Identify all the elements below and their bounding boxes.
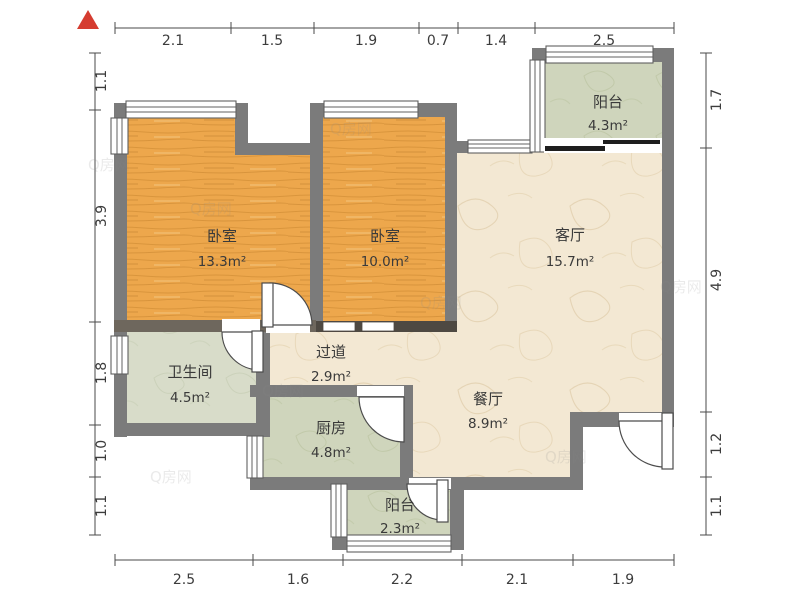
wall-notch-bottom bbox=[235, 143, 316, 155]
exterior-notch bbox=[248, 100, 310, 143]
balcony-bottom-area: 2.3m² bbox=[380, 521, 420, 537]
sliding-door-panel bbox=[603, 140, 660, 144]
watermark-text: Q房网 bbox=[150, 468, 192, 486]
dim-top-6: 2.5 bbox=[593, 33, 615, 49]
window-living-north bbox=[468, 140, 532, 153]
balcony-bottom-label: 阳台 bbox=[385, 496, 415, 514]
dim-left-2: 3.9 bbox=[94, 205, 110, 227]
watermark-text: Q房网 bbox=[88, 156, 130, 174]
watermark-text: Q房网 bbox=[545, 448, 587, 466]
dim-top-3: 1.9 bbox=[355, 33, 377, 49]
floor-plan-drawing: 卧室 13.3m² 卧室 10.0m² 客厅 15.7m² 阳台 4.3m² 卫… bbox=[0, 0, 800, 600]
floor-plan-page: 卧室 13.3m² 卧室 10.0m² 客厅 15.7m² 阳台 4.3m² 卫… bbox=[0, 0, 800, 600]
bedroom2-sliding-panel bbox=[323, 322, 355, 331]
balcony-top-area: 4.3m² bbox=[588, 118, 628, 134]
watermark-text: Q房网 bbox=[660, 278, 702, 296]
dim-left-5: 1.1 bbox=[94, 495, 110, 517]
watermark-text: Q房网 bbox=[330, 120, 372, 138]
dim-bottom-5: 1.9 bbox=[612, 572, 634, 588]
dim-top-5: 1.4 bbox=[485, 33, 507, 49]
dining-room-area: 8.9m² bbox=[468, 416, 508, 432]
dining-room-label: 餐厅 bbox=[473, 390, 503, 408]
dimension-top: 2.1 1.5 1.9 0.7 1.4 2.5 bbox=[115, 22, 674, 49]
kitchen-label: 厨房 bbox=[316, 419, 346, 437]
wall-bedroom2-right bbox=[445, 103, 457, 325]
dimension-bottom: 2.5 1.6 2.2 2.1 1.9 bbox=[115, 554, 674, 588]
wall-bathroom-bottom bbox=[114, 423, 264, 436]
dim-right-2: 4.9 bbox=[709, 269, 725, 291]
wall-bedrooms-divider bbox=[310, 103, 323, 325]
wall-balcony-bottom-right bbox=[450, 477, 464, 550]
bathroom-area: 4.5m² bbox=[170, 390, 210, 406]
entry-door bbox=[619, 413, 673, 469]
dim-bottom-2: 1.6 bbox=[287, 572, 309, 588]
watermark-text: Q房网 bbox=[262, 382, 304, 400]
watermark-text: Q房网 bbox=[420, 294, 462, 312]
balcony-top-sliding-door bbox=[544, 138, 662, 153]
watermark-text: Q房网 bbox=[190, 200, 232, 218]
dim-top-4: 0.7 bbox=[427, 33, 449, 49]
dim-top-1: 2.1 bbox=[162, 33, 184, 49]
dim-left-3: 1.8 bbox=[94, 362, 110, 384]
dim-bottom-4: 2.1 bbox=[506, 572, 528, 588]
window-bedroom1-top bbox=[126, 101, 236, 118]
dim-top-2: 1.5 bbox=[261, 33, 283, 49]
dim-right-4: 1.1 bbox=[709, 495, 725, 517]
dimension-left: 1.1 3.9 1.8 1.0 1.1 bbox=[89, 53, 110, 535]
window-bedroom2-top bbox=[324, 101, 418, 118]
dim-bottom-1: 2.5 bbox=[173, 572, 195, 588]
hallway-area: 2.9m² bbox=[311, 369, 351, 385]
dimension-right: 1.7 4.9 1.2 1.1 bbox=[700, 53, 725, 535]
window-balcony-bottom bbox=[347, 535, 451, 552]
bedroom-2-label: 卧室 bbox=[370, 227, 400, 245]
window-balcony-top-left-column bbox=[530, 60, 545, 152]
bedroom2-sliding-panel bbox=[362, 322, 394, 331]
bathroom-label: 卫生间 bbox=[167, 363, 212, 381]
wall-living-north-stub bbox=[445, 141, 470, 153]
wall-balcony-bottom-corner bbox=[332, 536, 348, 550]
hallway-label: 过道 bbox=[316, 343, 346, 361]
dim-right-3: 1.2 bbox=[709, 433, 725, 455]
room-floors bbox=[118, 56, 668, 544]
window-balcony-bottom-left-column bbox=[331, 484, 347, 537]
balcony-top-label: 阳台 bbox=[593, 93, 623, 111]
dim-right-1: 1.7 bbox=[709, 89, 725, 111]
bedroom-1-label: 卧室 bbox=[207, 227, 237, 245]
living-room-area: 15.7m² bbox=[546, 254, 595, 270]
dim-left-1: 1.1 bbox=[94, 70, 110, 92]
wall-right-outer bbox=[662, 48, 674, 414]
window-kitchen-left bbox=[247, 436, 263, 478]
sliding-door-panel bbox=[545, 146, 605, 151]
kitchen-area: 4.8m² bbox=[311, 445, 351, 461]
living-room-label: 客厅 bbox=[555, 226, 585, 244]
dim-left-4: 1.0 bbox=[94, 440, 110, 462]
dim-bottom-3: 2.2 bbox=[391, 572, 413, 588]
kitchen-door-opening bbox=[357, 386, 404, 396]
bedroom-1-area: 13.3m² bbox=[198, 254, 247, 270]
window-bedroom1-left bbox=[111, 118, 128, 154]
window-bathroom-left bbox=[111, 336, 128, 374]
north-triangle-icon bbox=[77, 10, 99, 29]
bedroom-2-area: 10.0m² bbox=[361, 254, 410, 270]
